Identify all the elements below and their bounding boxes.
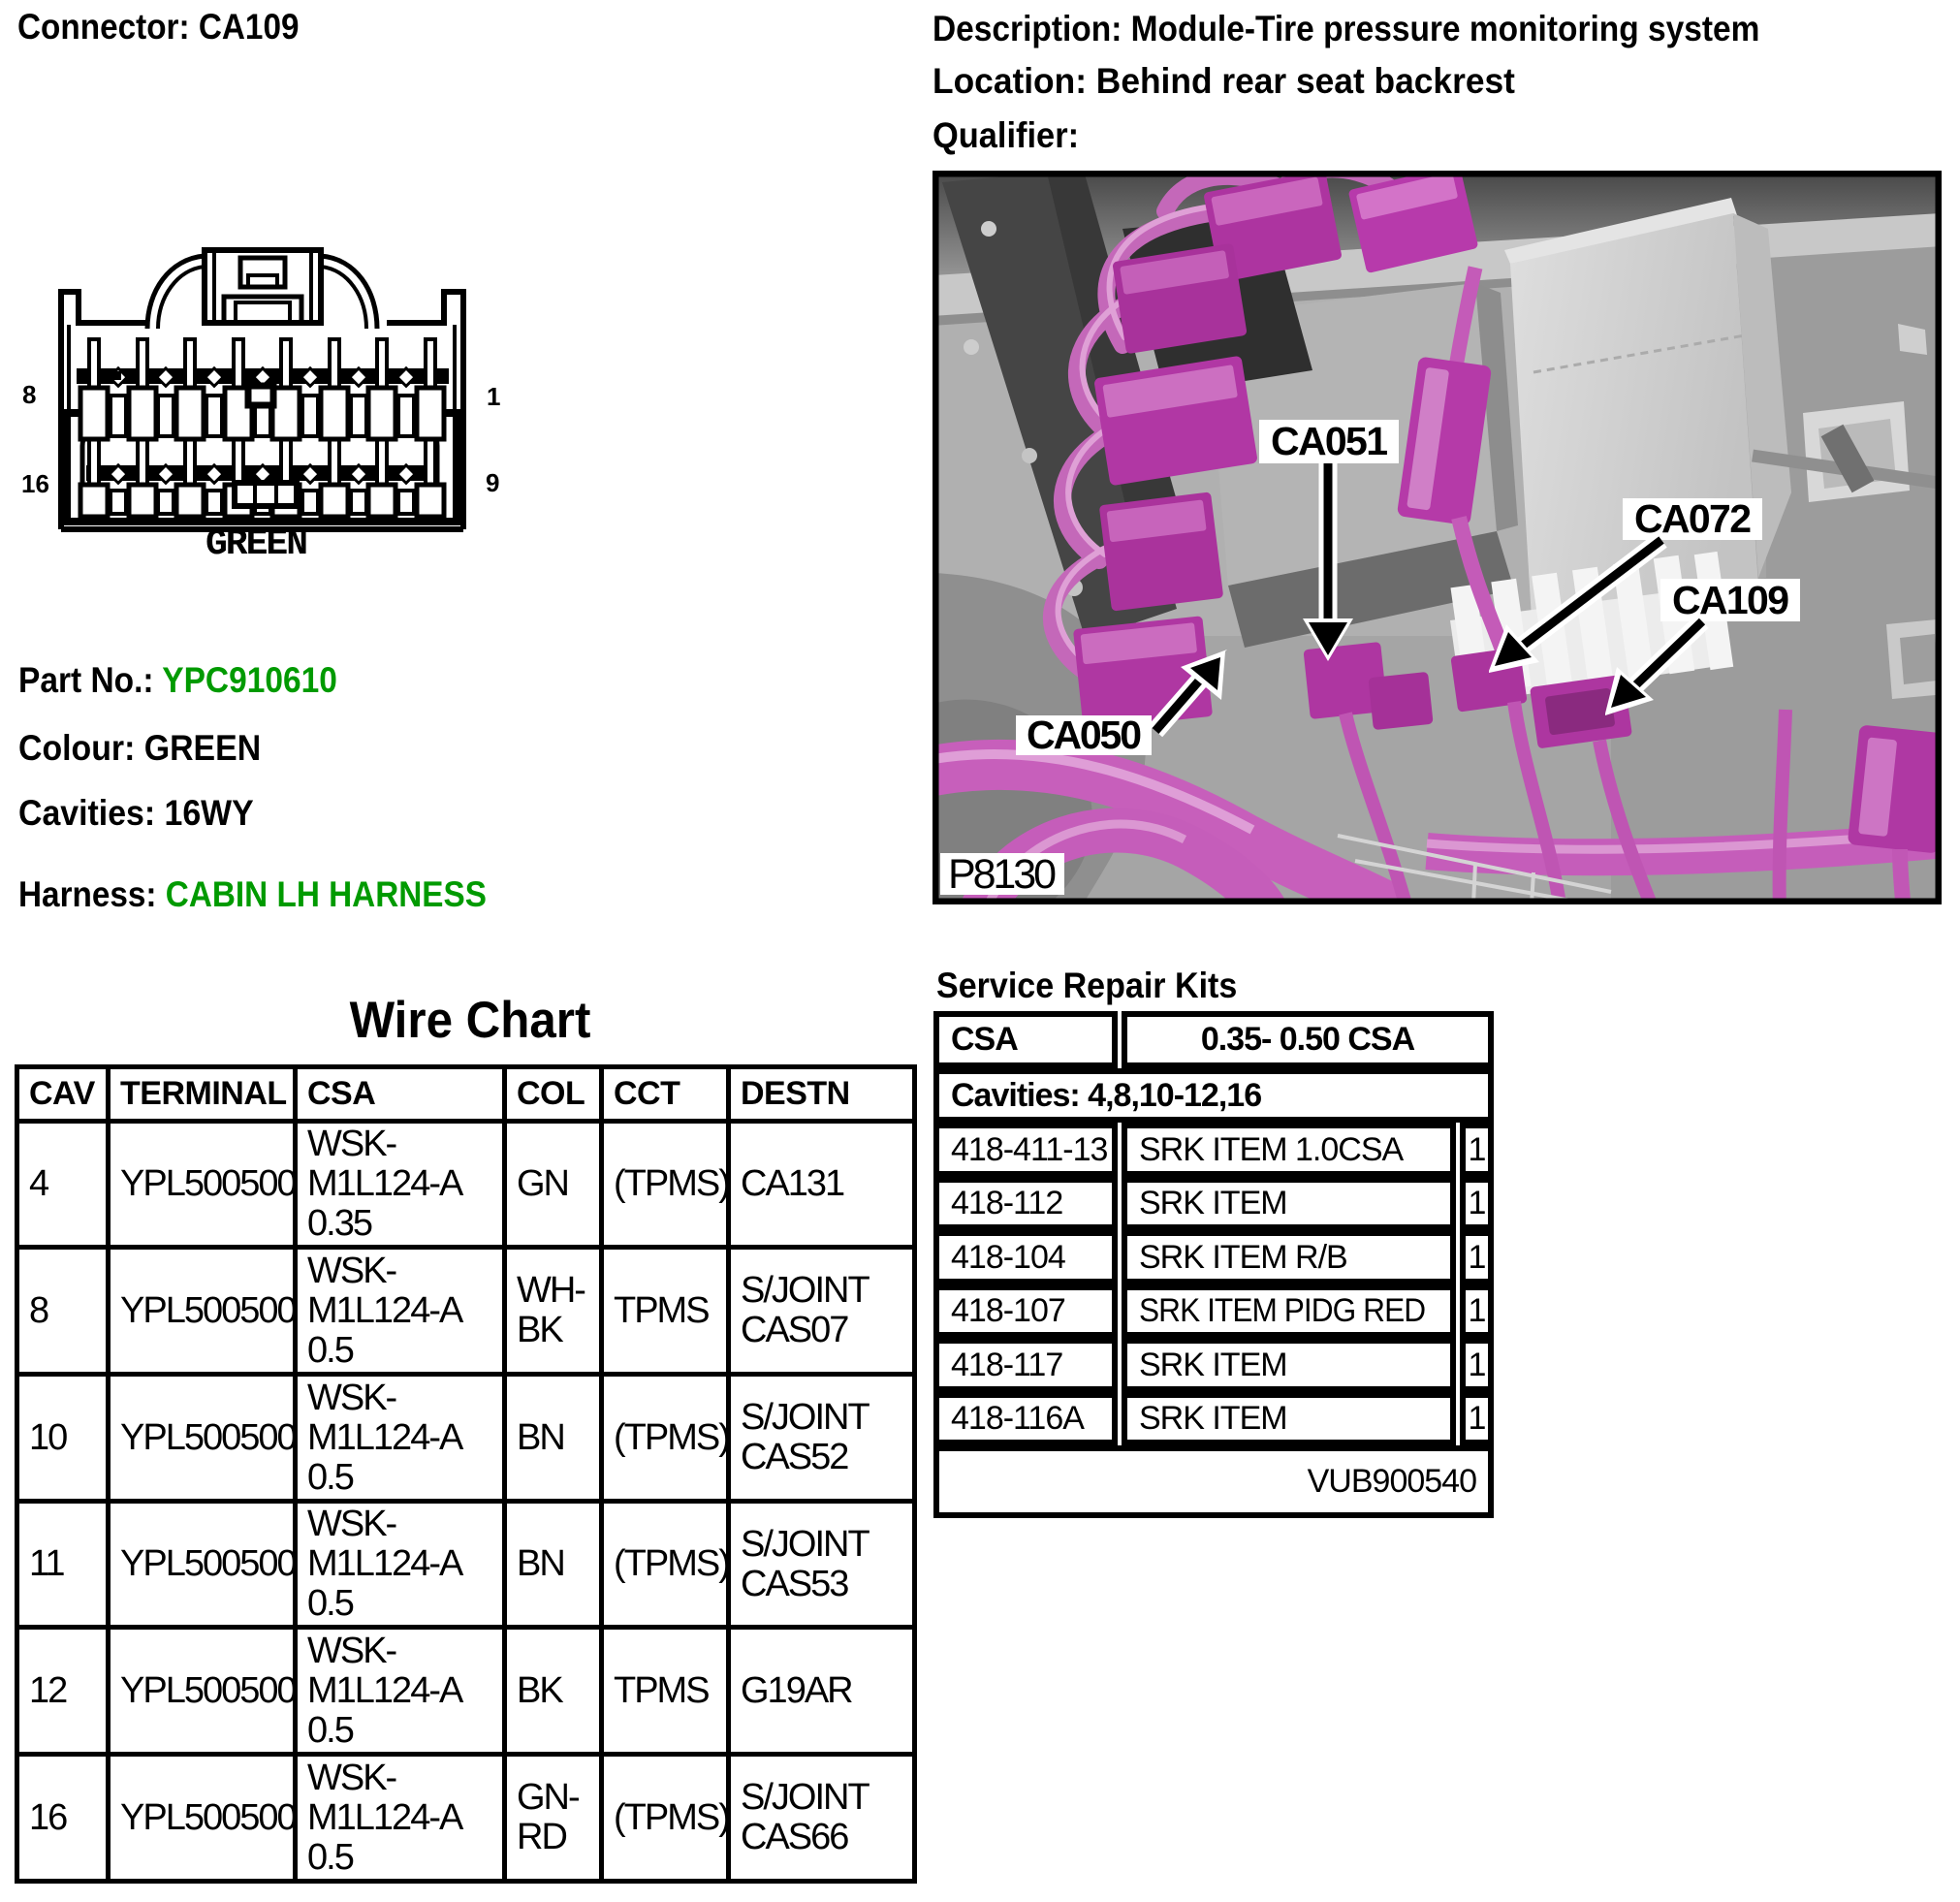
svg-text:CA109: CA109 (1672, 578, 1789, 622)
svg-text:1: 1 (487, 382, 500, 411)
svg-text:8: 8 (22, 380, 36, 409)
svg-text:CA050: CA050 (1027, 713, 1142, 757)
svg-text:P8130: P8130 (948, 851, 1057, 898)
svg-text:16: 16 (21, 469, 49, 498)
svg-text:9: 9 (486, 468, 499, 497)
svg-text:GREEN: GREEN (205, 523, 306, 565)
svg-text:CA072: CA072 (1634, 496, 1752, 541)
svg-text:CA051: CA051 (1271, 419, 1388, 463)
